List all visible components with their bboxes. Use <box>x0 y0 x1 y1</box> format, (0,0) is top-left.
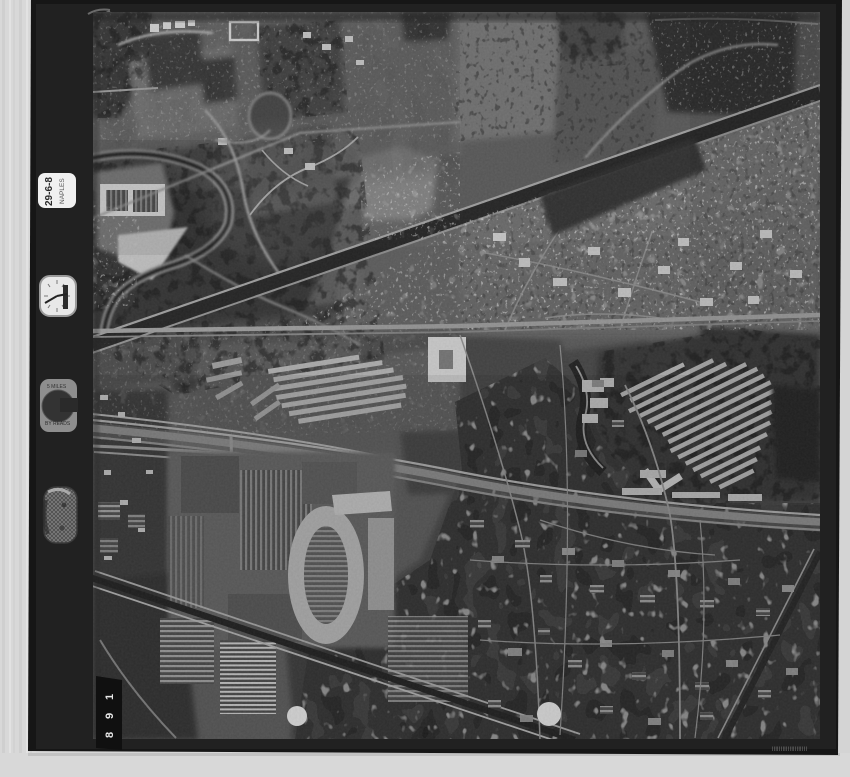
svg-text:5 MILES: 5 MILES <box>47 384 67 390</box>
svg-text:NAPLES: NAPLES <box>59 178 66 204</box>
svg-text:8: 8 <box>104 732 116 738</box>
svg-text:BY READS: BY READS <box>45 421 71 427</box>
svg-text:1: 1 <box>104 694 116 700</box>
svg-text:9: 9 <box>104 713 116 719</box>
svg-text:29-6-8: 29-6-8 <box>44 177 55 206</box>
svg-text:||||||||||||||||||||: |||||||||||||||||||| <box>772 746 807 751</box>
